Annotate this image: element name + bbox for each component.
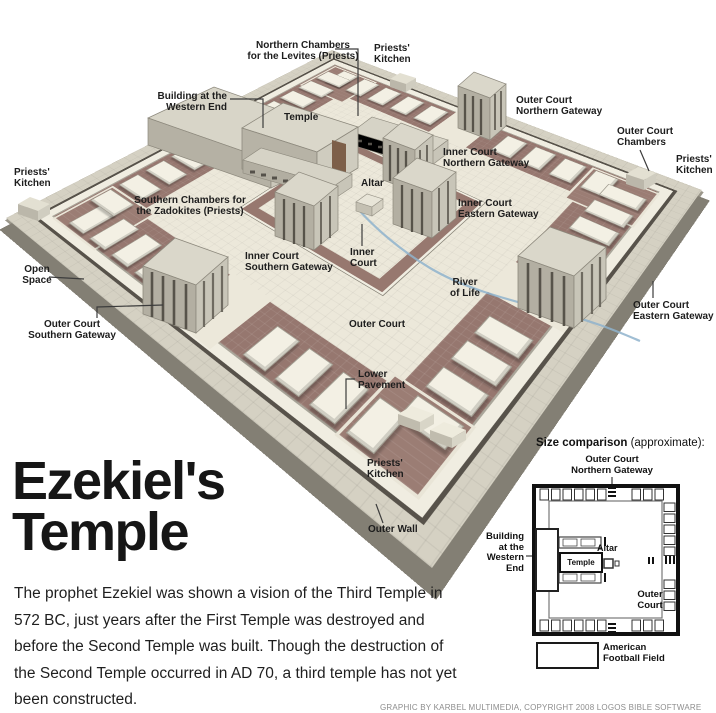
label-northern-chambers: Northern Chambersfor the Levites (Priest… bbox=[232, 41, 374, 62]
inset-chamber-tile bbox=[644, 620, 653, 631]
inset-chamber-tile bbox=[664, 547, 675, 556]
label-inner-court-eastern-gateway: Inner CourtEastern Gateway bbox=[458, 199, 539, 220]
inset-label-outer-court: Outer Court bbox=[630, 590, 670, 611]
inset-chamber-tile bbox=[598, 489, 607, 500]
inset-chamber-tile bbox=[575, 489, 584, 500]
inset-chamber-tile bbox=[664, 536, 675, 545]
inset-chamber-tile bbox=[644, 489, 653, 500]
inset-chamber-tile bbox=[563, 489, 572, 500]
label-altar: Altar bbox=[361, 179, 384, 190]
inset-chamber-tile bbox=[552, 620, 561, 631]
credit-line: GRAPHIC BY KARBEL MULTIMEDIA, COPYRIGHT … bbox=[380, 703, 716, 712]
label-priests-kitchen-north: Priests'Kitchen bbox=[374, 44, 411, 65]
label-outer-court: Outer Court bbox=[349, 320, 405, 331]
label-temple: Temple bbox=[284, 113, 318, 124]
label-inner-court: InnerCourt bbox=[350, 248, 377, 269]
label-river-of-life: Riverof Life bbox=[440, 278, 490, 299]
label-inner-court-southern-gateway: Inner CourtSouthern Gateway bbox=[245, 252, 333, 273]
inset-chamber-tile bbox=[540, 620, 549, 631]
inset-label-football-field: American Football Field bbox=[603, 643, 665, 664]
inset-chamber-tile bbox=[664, 580, 675, 589]
inset-chamber-tile bbox=[632, 620, 641, 631]
label-outer-court-northern-gateway: Outer CourtNorthern Gateway bbox=[516, 96, 602, 117]
label-southern-chambers: Southern Chambers forthe Zadokites (Prie… bbox=[122, 196, 258, 217]
inset-chamber-tile bbox=[632, 489, 641, 500]
label-lower-pavement: LowerPavement bbox=[358, 370, 405, 391]
inset-label-outer-court-northern-gateway: Outer Court Northern Gateway bbox=[557, 455, 667, 476]
label-outer-wall: Outer Wall bbox=[368, 525, 418, 536]
intro-paragraph: The prophet Ezekiel was shown a vision o… bbox=[14, 581, 466, 713]
label-outer-court-southern-gateway: Outer CourtSouthern Gateway bbox=[22, 320, 122, 341]
label-priests-kitchen-south: Priests'Kitchen bbox=[367, 459, 404, 480]
inset-chamber-tile bbox=[664, 514, 675, 523]
inset-chamber-tile bbox=[540, 489, 549, 500]
infographic-page: Northern Chambersfor the Levites (Priest… bbox=[0, 0, 716, 713]
inset-label-building-western-end: Building at the Western End bbox=[478, 532, 524, 574]
inset-plan-svg bbox=[528, 480, 688, 640]
inset-chamber-tile bbox=[664, 503, 675, 512]
inset-chamber-tile bbox=[655, 620, 664, 631]
inset-chamber-tile bbox=[655, 489, 664, 500]
label-inner-court-northern-gateway: Inner CourtNorthern Gateway bbox=[443, 148, 529, 169]
inset-chamber-tile bbox=[598, 620, 607, 631]
label-open-space: OpenSpace bbox=[12, 265, 62, 286]
inset-chamber-tile bbox=[552, 489, 561, 500]
inset-chamber-tile bbox=[586, 620, 595, 631]
label-building-western-end: Building at theWestern End bbox=[140, 92, 227, 113]
inset-label-temple: Temple bbox=[559, 552, 603, 573]
inset-chamber-tile bbox=[586, 489, 595, 500]
label-priests-kitchen-east: Priests'Kitchen bbox=[676, 155, 713, 176]
page-title: Ezekiel'sTemple bbox=[12, 456, 225, 558]
football-field-swatch bbox=[536, 642, 599, 669]
label-outer-court-eastern-gateway: Outer CourtEastern Gateway bbox=[633, 301, 714, 322]
inset-chamber-tile bbox=[664, 525, 675, 534]
inset-title: Size comparison (approximate): bbox=[536, 437, 705, 449]
inset-chamber-tile bbox=[563, 620, 572, 631]
label-priests-kitchen-west: Priests'Kitchen bbox=[14, 168, 51, 189]
label-outer-court-chambers: Outer CourtChambers bbox=[617, 127, 673, 148]
inset-chamber-tile bbox=[575, 620, 584, 631]
inset-label-altar: Altar bbox=[597, 543, 618, 553]
